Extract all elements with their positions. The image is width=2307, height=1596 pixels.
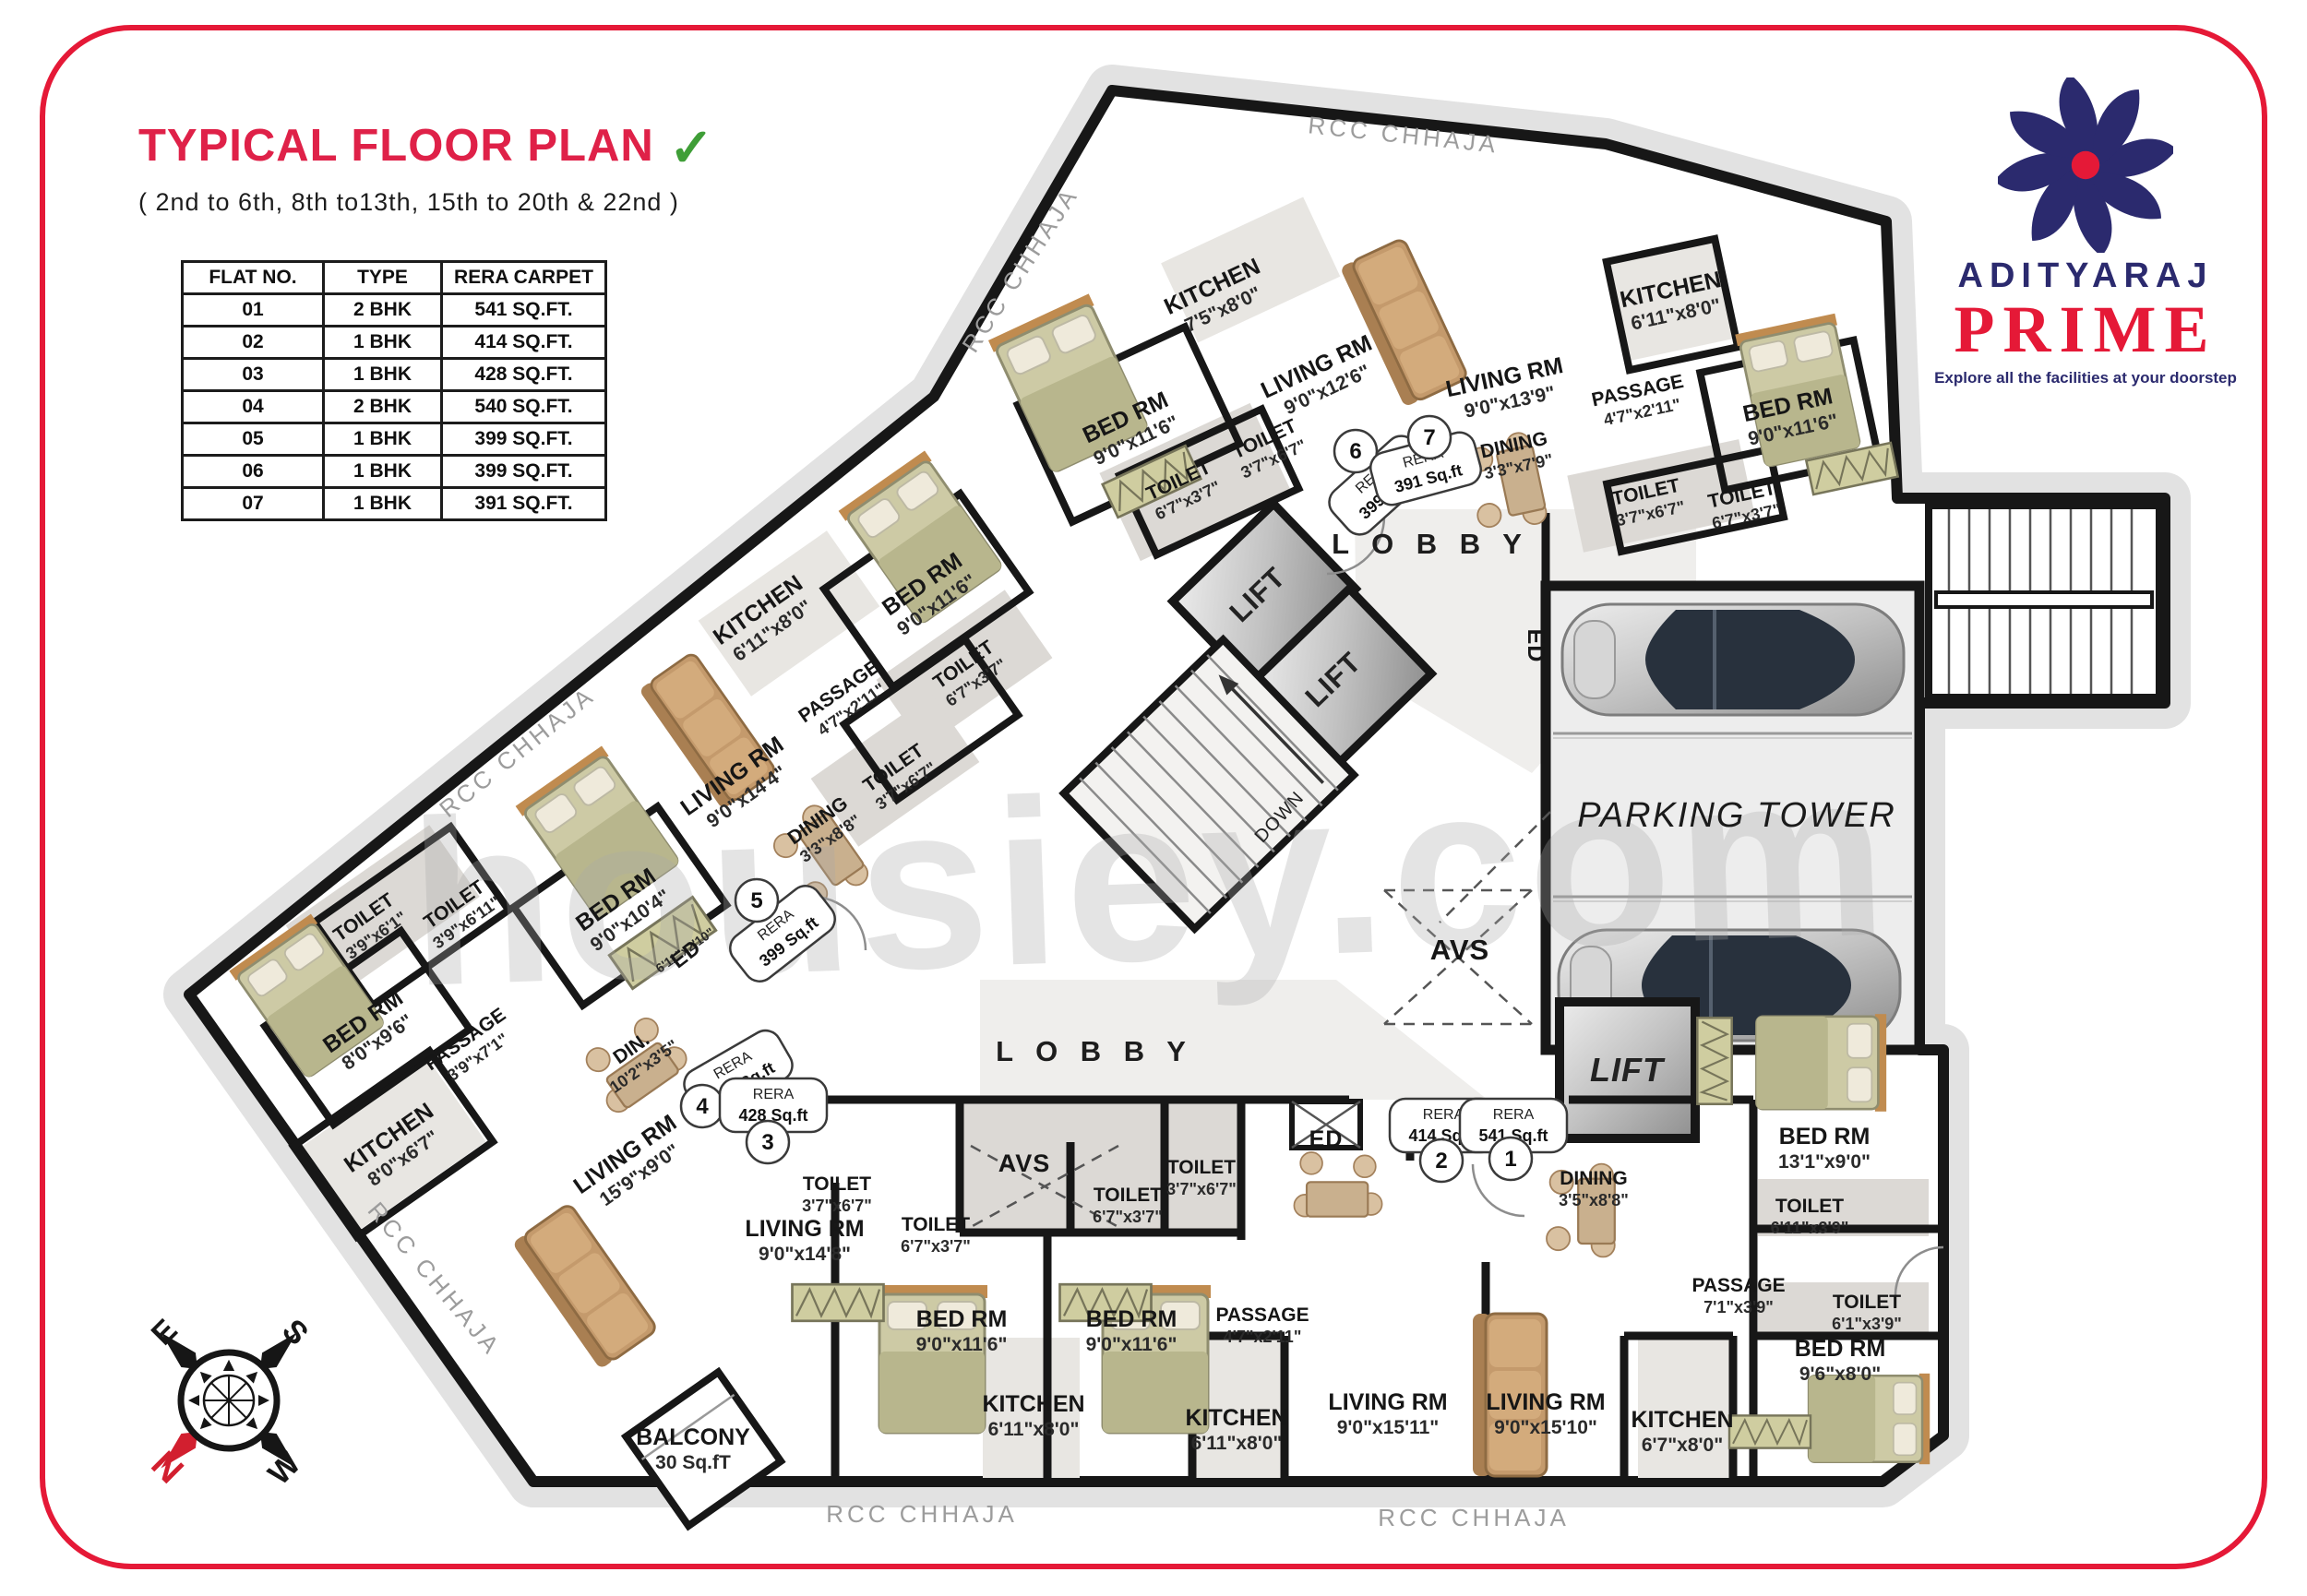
svg-text:6: 6: [1349, 439, 1361, 464]
plan-text: AVS: [998, 1149, 1051, 1177]
table-cell: 1 BHK: [324, 456, 442, 488]
table-cell: 2 BHK: [324, 391, 442, 423]
svg-text:2: 2: [1435, 1149, 1447, 1173]
room-label: BED RM9'6"x8'0": [1795, 1336, 1886, 1385]
plan-text: ED: [1309, 1126, 1344, 1152]
table-cell: 01: [183, 294, 324, 327]
svg-text:RERA: RERA: [1423, 1107, 1464, 1123]
svg-text:5: 5: [750, 888, 762, 913]
table-cell: 06: [183, 456, 324, 488]
header: TYPICAL FLOOR PLAN✓ ( 2nd to 6th, 8th to…: [138, 116, 713, 217]
room-label: LIVING RM9'0"x15'11": [1328, 1389, 1447, 1438]
svg-text:1: 1: [1504, 1147, 1516, 1172]
brand-name: ADITYARAJ: [1903, 256, 2268, 296]
room-label: TOILET3'7"x6'7": [1166, 1157, 1237, 1198]
table-cell: 541 SQ.FT.: [442, 294, 606, 327]
plan-text: ED: [1523, 629, 1548, 663]
svg-text:RERA: RERA: [1493, 1107, 1535, 1123]
room-label: BED RM9'0"x11'6": [1086, 1306, 1177, 1355]
room-label: DINING3'5"x8'8": [1559, 1168, 1629, 1209]
table-row: 021 BHK414 SQ.FT.: [183, 327, 606, 359]
room-label: PASSAGE7'1"x3'9": [1691, 1275, 1785, 1316]
table-cell: 02: [183, 327, 324, 359]
svg-text:4: 4: [696, 1094, 709, 1119]
room-label: LIVING RM9'0"x15'10": [1486, 1389, 1605, 1438]
table-cell: 414 SQ.FT.: [442, 327, 606, 359]
svg-text:7: 7: [1423, 425, 1435, 450]
table-cell: 540 SQ.FT.: [442, 391, 606, 423]
svg-text:3: 3: [761, 1130, 773, 1155]
col-flat-no: FLAT NO.: [183, 262, 324, 294]
flat-table: FLAT NO. TYPE RERA CARPET 012 BHK541 SQ.…: [181, 260, 607, 521]
col-rera-carpet: RERA CARPET: [442, 262, 606, 294]
brand-main: PRIME: [1903, 296, 2268, 363]
plan-text: AVS: [1430, 934, 1489, 966]
page-subtitle: ( 2nd to 6th, 8th to13th, 15th to 20th &…: [138, 188, 713, 217]
compass-w: W: [261, 1446, 307, 1492]
room-label: BED RM9'0"x11'6": [916, 1306, 1008, 1355]
table-row: 061 BHK399 SQ.FT.: [183, 456, 606, 488]
table-cell: 1 BHK: [324, 327, 442, 359]
check-icon: ✓: [669, 116, 714, 179]
room-label: KITCHEN6'11"x8'0": [1185, 1405, 1287, 1454]
compass-rose: E S W N: [143, 1313, 315, 1492]
table-cell: 2 BHK: [324, 294, 442, 327]
plan-text: L O B B Y: [996, 1035, 1193, 1067]
table-cell: 1 BHK: [324, 423, 442, 456]
plan-text: PARKING TOWER: [1577, 796, 1896, 835]
room-label: TOILET6'1"x3'9": [1832, 1292, 1902, 1333]
flat-table-body: 012 BHK541 SQ.FT.021 BHK414 SQ.FT.031 BH…: [183, 294, 606, 520]
room-label: KITCHEN6'11"x8'0": [982, 1391, 1084, 1440]
table-cell: 428 SQ.FT.: [442, 359, 606, 391]
table-row: 071 BHK391 SQ.FT.: [183, 488, 606, 520]
col-type: TYPE: [324, 262, 442, 294]
table-cell: 04: [183, 391, 324, 423]
room-label: TOILET3'7"x6'7": [802, 1173, 872, 1215]
pinwheel-logo-icon: [1998, 77, 2173, 253]
plan-text: RCC CHHAJA: [1378, 1504, 1570, 1531]
plan-text: LIFT: [1590, 1051, 1666, 1089]
table-cell: 399 SQ.FT.: [442, 456, 606, 488]
table-row: 031 BHK428 SQ.FT.: [183, 359, 606, 391]
brand-logo: ADITYARAJ PRIME Explore all the faciliti…: [1903, 77, 2268, 387]
floor-plan-poster: housiey.com KITCHEN7'5"x8'0"LIVING RM9'0…: [0, 0, 2307, 1596]
room-label: BED RM13'1"x9'0": [1778, 1124, 1871, 1173]
table-cell: 1 BHK: [324, 359, 442, 391]
room-label: TOILET6'11"x3'9": [1771, 1196, 1849, 1237]
table-cell: 03: [183, 359, 324, 391]
table-row: 012 BHK541 SQ.FT.: [183, 294, 606, 327]
plan-text: RCC CHHAJA: [826, 1500, 1018, 1528]
room-label: PASSAGE4'7"x2'11": [1215, 1304, 1309, 1346]
table-cell: 391 SQ.FT.: [442, 488, 606, 520]
room-label: TOILET6'7"x3'7": [901, 1214, 971, 1256]
brand-tagline: Explore all the facilities at your doors…: [1903, 369, 2268, 387]
room-label: TOILET6'7"x3'7": [1093, 1185, 1163, 1226]
table-row: 042 BHK540 SQ.FT.: [183, 391, 606, 423]
table-cell: 1 BHK: [324, 488, 442, 520]
table-cell: 05: [183, 423, 324, 456]
svg-text:RERA: RERA: [753, 1087, 795, 1102]
table-cell: 07: [183, 488, 324, 520]
staircase-right: [1929, 506, 2159, 697]
room-label: LIVING RM9'0"x14'8": [745, 1216, 864, 1265]
page-title: TYPICAL FLOOR PLAN: [138, 120, 654, 172]
table-cell: 399 SQ.FT.: [442, 423, 606, 456]
table-row: 051 BHK399 SQ.FT.: [183, 423, 606, 456]
room-label: KITCHEN6'7"x8'0": [1631, 1407, 1733, 1456]
